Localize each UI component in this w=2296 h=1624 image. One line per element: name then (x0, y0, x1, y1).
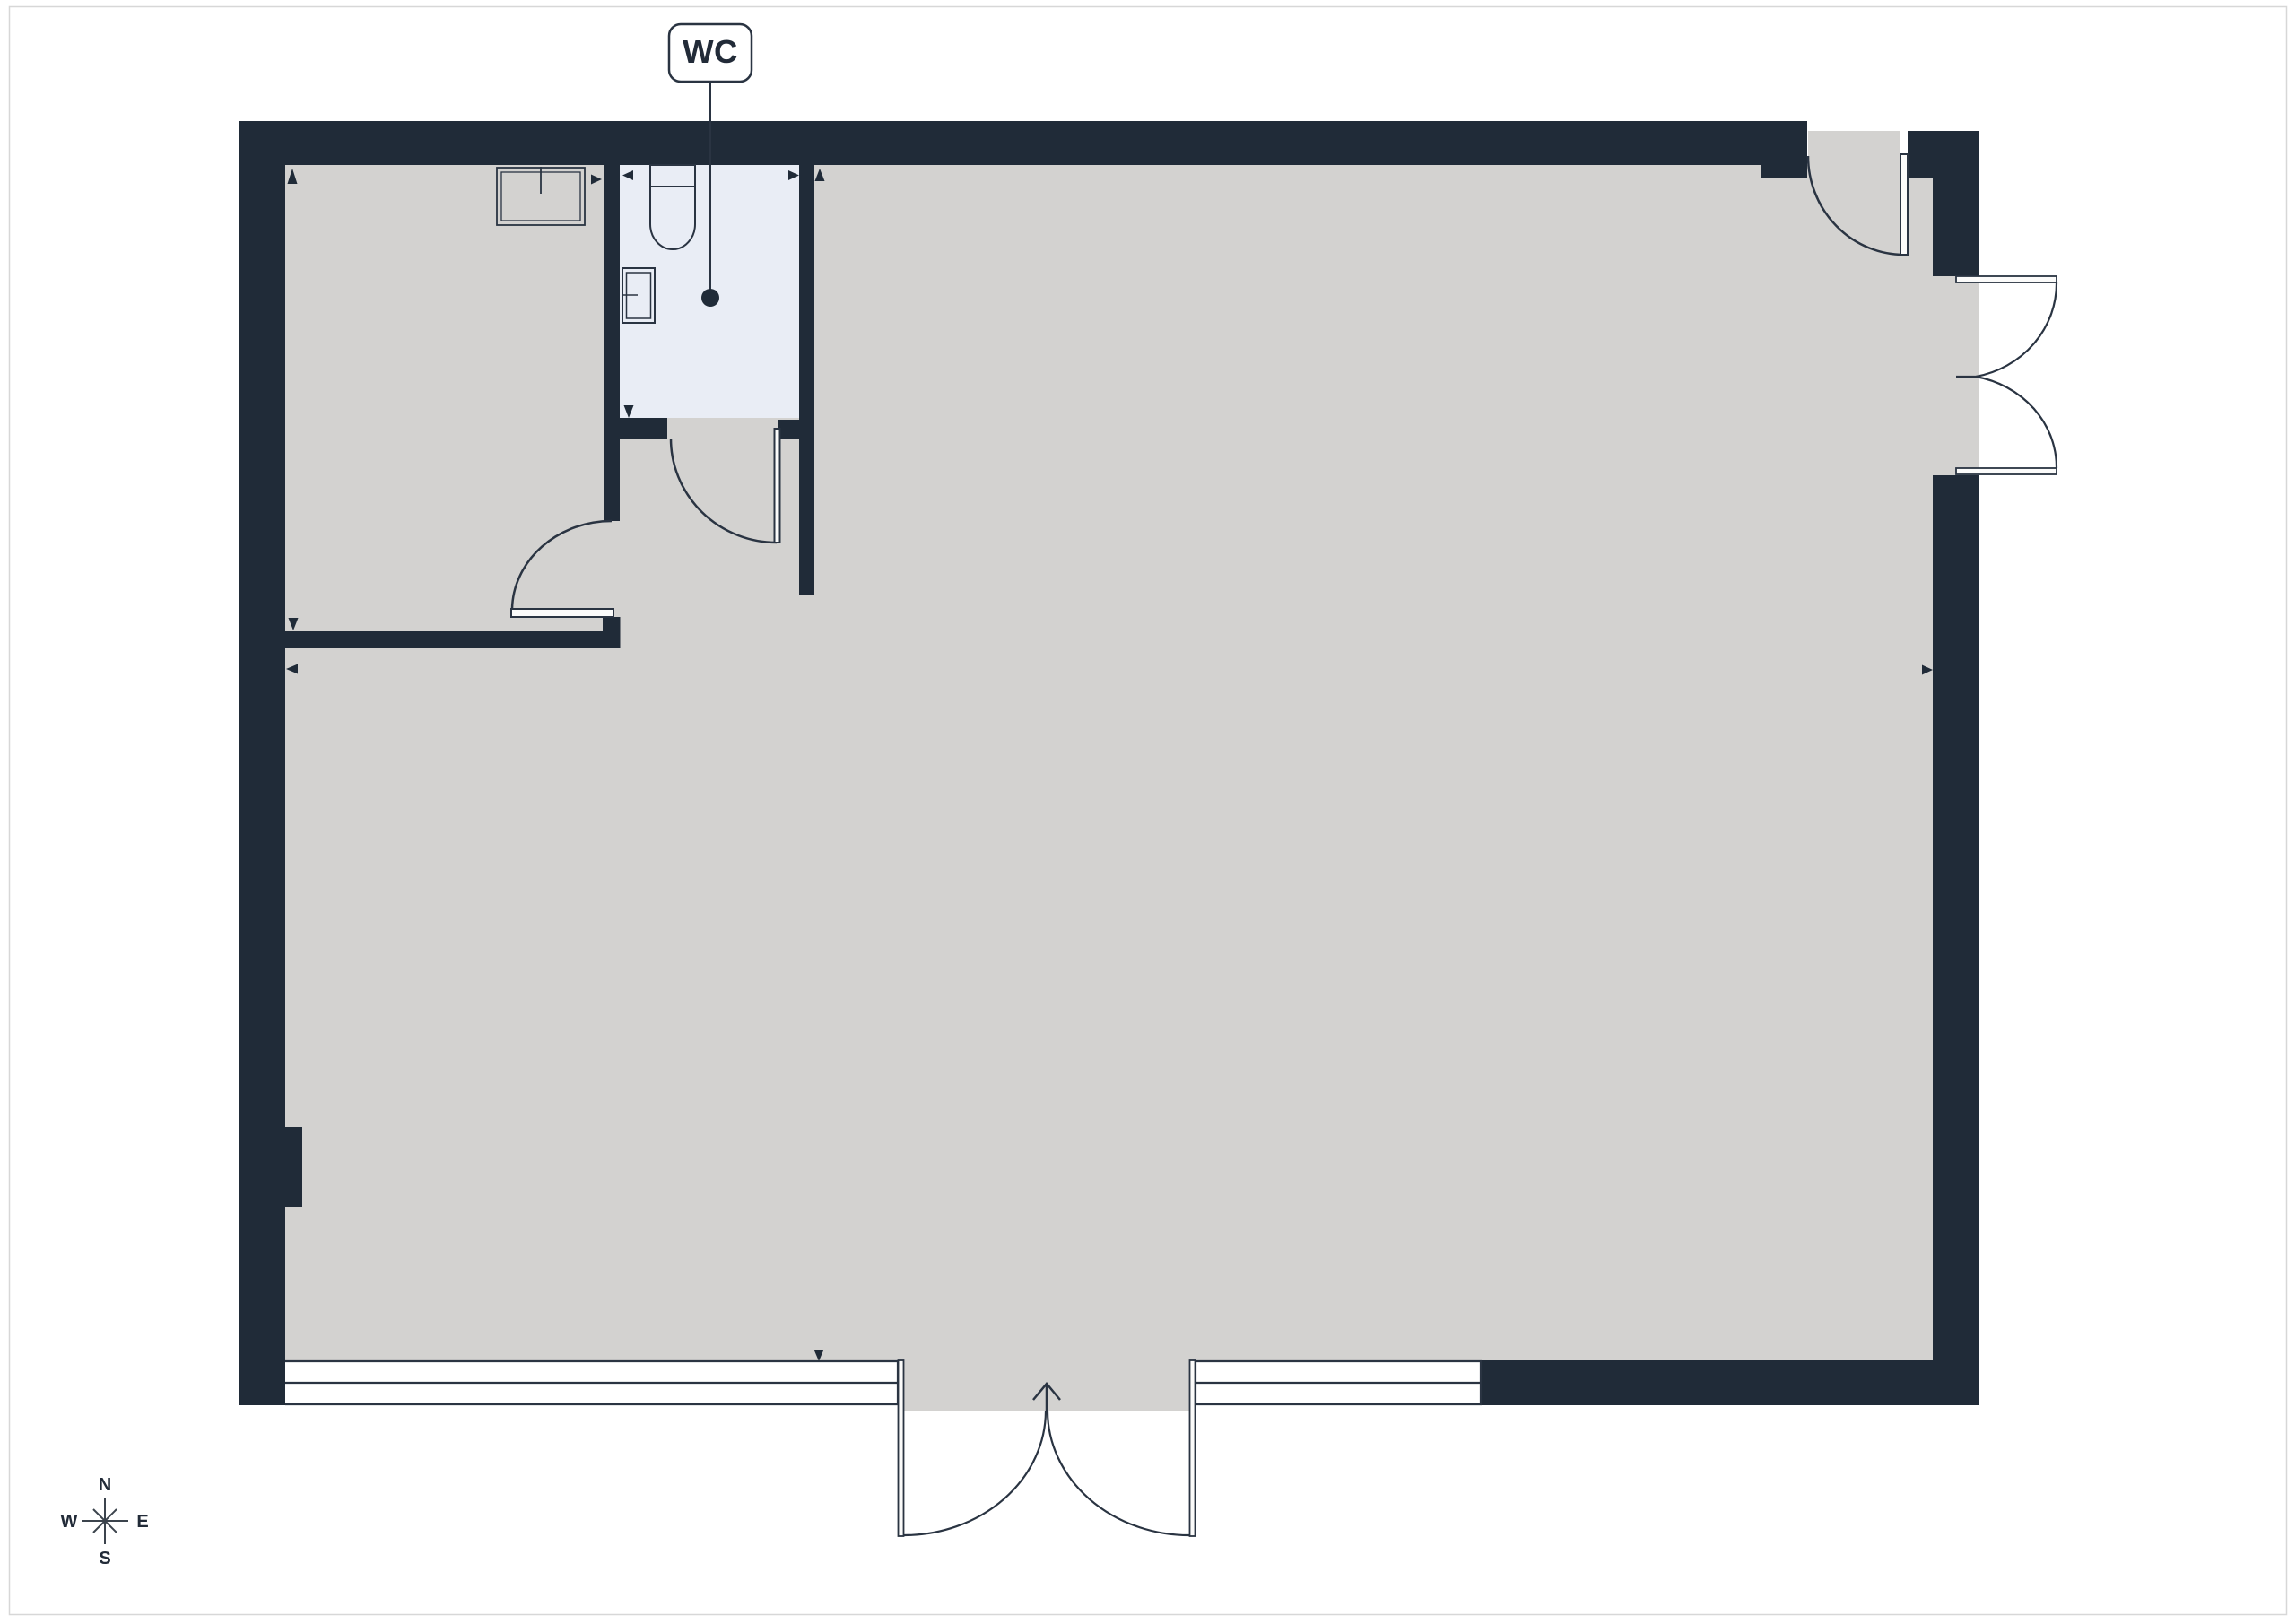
svg-text:S: S (99, 1549, 110, 1568)
svg-text:E: E (136, 1512, 148, 1532)
svg-text:WC: WC (683, 33, 738, 70)
svg-text:N: N (99, 1475, 111, 1495)
svg-text:W: W (61, 1512, 78, 1532)
